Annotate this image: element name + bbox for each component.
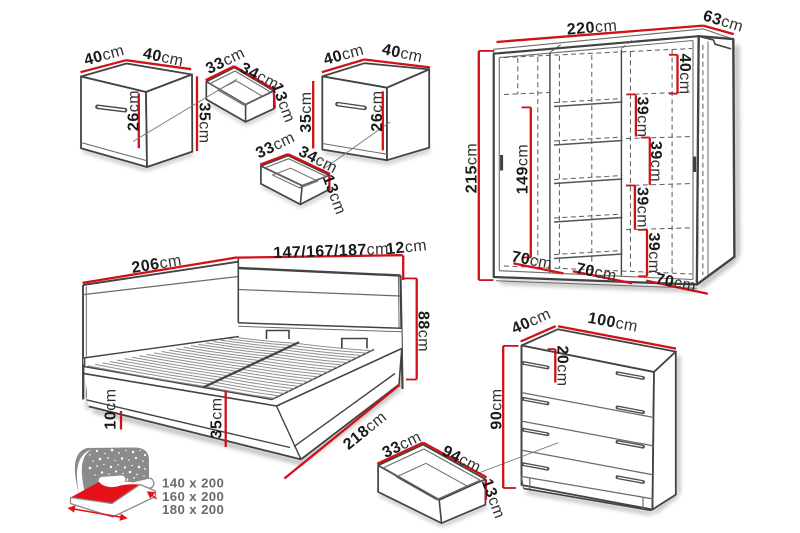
svg-text:35cm: 35cm	[196, 102, 213, 143]
svg-text:90cm: 90cm	[488, 388, 505, 429]
svg-text:35cm: 35cm	[298, 91, 315, 132]
svg-text:215cm: 215cm	[463, 143, 480, 194]
svg-text:20cm: 20cm	[554, 345, 571, 386]
svg-text:149cm: 149cm	[514, 144, 531, 195]
svg-text:26cm: 26cm	[125, 90, 142, 131]
svg-text:10cm: 10cm	[102, 388, 119, 429]
svg-text:39cm: 39cm	[647, 141, 664, 182]
svg-text:35cm: 35cm	[208, 397, 225, 438]
svg-text:39cm: 39cm	[645, 232, 662, 273]
svg-text:180 x 200: 180 x 200	[162, 502, 224, 517]
svg-text:88cm: 88cm	[415, 311, 432, 352]
svg-text:26cm: 26cm	[369, 90, 386, 131]
svg-text:40cm: 40cm	[676, 53, 693, 94]
svg-text:39cm: 39cm	[634, 96, 651, 137]
svg-text:39cm: 39cm	[634, 187, 651, 228]
